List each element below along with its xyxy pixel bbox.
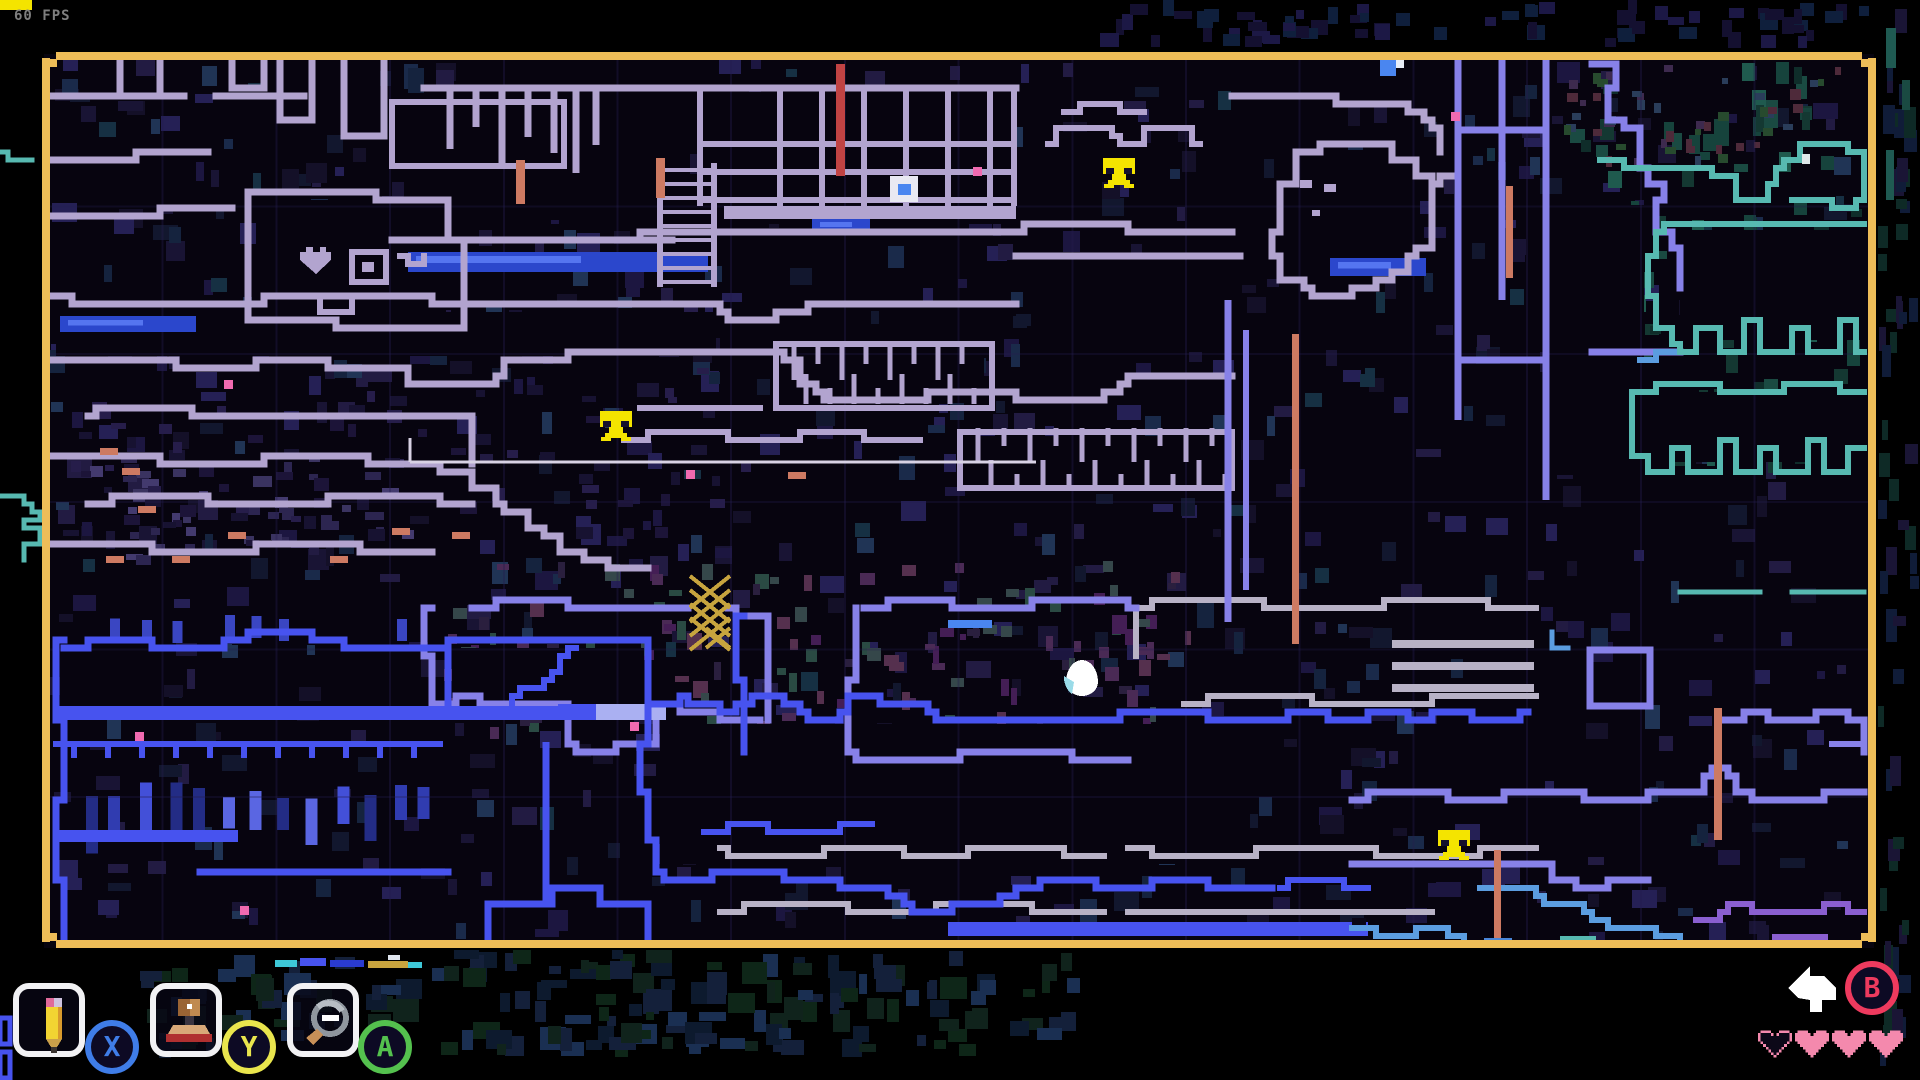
heart-empty-icon (1758, 1028, 1792, 1060)
health-hearts (1758, 1028, 1903, 1060)
gamepad-x-badge: X (85, 1020, 139, 1074)
heart-filled-icon (1869, 1028, 1903, 1060)
world-map-canvas[interactable] (0, 0, 1920, 1080)
gamepad-y-badge: Y (222, 1020, 276, 1074)
gamepad-a-badge: A (358, 1020, 412, 1074)
zoom-out-tool-button[interactable] (287, 983, 359, 1057)
heart-filled-icon (1795, 1028, 1829, 1060)
heart-filled-icon (1832, 1028, 1866, 1060)
gamepad-a-label: A (377, 1033, 394, 1061)
stamp-tool-button[interactable] (150, 983, 222, 1057)
stamp-icon (156, 989, 228, 1063)
pencil-tool-button[interactable] (13, 983, 85, 1057)
undo-arrow-icon[interactable] (1786, 960, 1842, 1016)
fps-counter: 60 FPS (14, 8, 71, 24)
magnifier-minus-icon (293, 989, 365, 1063)
gamepad-b-label: B (1864, 974, 1881, 1002)
pencil-icon (19, 989, 91, 1063)
gamepad-y-label: Y (241, 1033, 258, 1061)
gamepad-x-label: X (104, 1033, 121, 1061)
gamepad-b-badge[interactable]: B (1845, 961, 1899, 1015)
map-screen: 60 FPS X Y (0, 0, 1920, 1080)
